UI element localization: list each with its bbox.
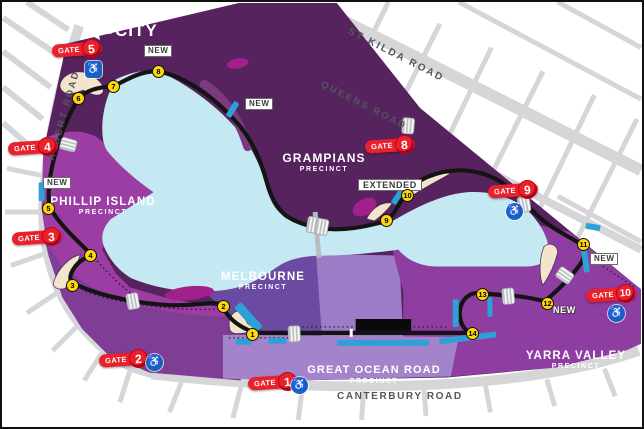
new-flag-turn8: NEW bbox=[144, 45, 172, 57]
new-flag-turn5: NEW bbox=[43, 177, 71, 189]
precinct-yarra-valley: YARRA VALLEY PRECINCT bbox=[526, 350, 626, 370]
accessible-icon-gate5: ♿ bbox=[85, 61, 102, 78]
turn-marker-6: 6 bbox=[72, 92, 85, 105]
new-flag-turn11: NEW bbox=[590, 253, 618, 265]
accessible-icon-gate10: ♿ bbox=[608, 305, 625, 322]
gate-4-badge: GATE 4 bbox=[8, 139, 59, 155]
precinct-great-ocean-road: GREAT OCEAN ROAD PRECINCT bbox=[307, 365, 441, 385]
accessible-icon-gate2: ♿ bbox=[146, 354, 163, 371]
turn-marker-10: 10 bbox=[401, 189, 414, 202]
accessible-icon-gate9: ♿ bbox=[506, 203, 523, 220]
turn-marker-13: 13 bbox=[476, 288, 489, 301]
gate-9-badge: GATE 9 bbox=[488, 182, 539, 198]
gate-10-badge: GATE 10 bbox=[586, 286, 637, 302]
turn-marker-8: 8 bbox=[152, 65, 165, 78]
albert-park-circuit-map: CITY ST KILDA ROAD QUEENS ROAD ALBERT RO… bbox=[0, 0, 644, 429]
turn-marker-9: 9 bbox=[380, 214, 393, 227]
extended-flag-turn10: EXTENDED bbox=[358, 179, 422, 191]
precinct-melbourne: MELBOURNE PRECINCT bbox=[221, 271, 305, 291]
city-arrow-icon bbox=[86, 22, 112, 41]
turn-marker-4: 4 bbox=[84, 249, 97, 262]
city-label: CITY bbox=[115, 21, 158, 41]
turn-marker-11: 11 bbox=[577, 238, 590, 251]
turn-marker-7: 7 bbox=[107, 80, 120, 93]
new-label-turn12: NEW bbox=[553, 305, 576, 315]
road-label-canterbury: CANTERBURY ROAD bbox=[337, 391, 463, 402]
city-direction: CITY bbox=[86, 21, 158, 41]
new-flag-north: NEW bbox=[245, 98, 273, 110]
turn-marker-1: 1 bbox=[246, 328, 259, 341]
gate-5-badge: GATE 5 bbox=[52, 41, 103, 57]
precinct-grampians: GRAMPIANS PRECINCT bbox=[282, 152, 365, 173]
pit-building bbox=[356, 319, 411, 331]
turn-marker-14: 14 bbox=[466, 327, 479, 340]
accessible-icon-gate1: ♿ bbox=[291, 377, 308, 394]
turn-marker-3: 3 bbox=[66, 279, 79, 292]
gate-2-badge: GATE 2 bbox=[99, 351, 150, 367]
precinct-phillip-island: PHILLIP ISLAND PRECINCT bbox=[50, 196, 155, 216]
gate-3-badge: GATE 3 bbox=[12, 229, 63, 245]
start-finish-line bbox=[350, 329, 353, 337]
turn-marker-12: 12 bbox=[541, 297, 554, 310]
turn-marker-5: 5 bbox=[42, 202, 55, 215]
turn-marker-2: 2 bbox=[217, 300, 230, 313]
gate-8-badge: GATE 8 bbox=[365, 137, 416, 153]
